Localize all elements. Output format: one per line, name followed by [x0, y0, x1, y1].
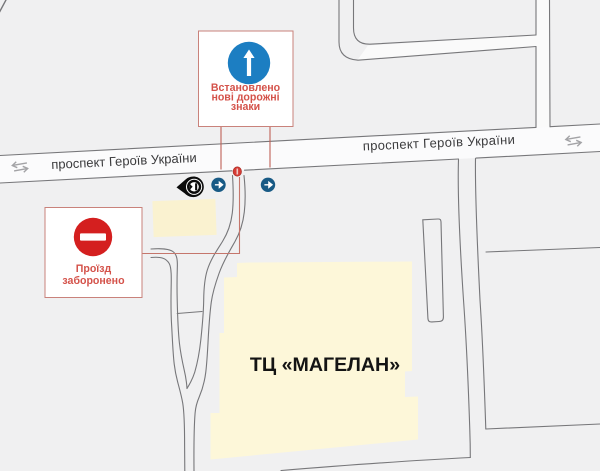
- svg-text:ТЦ «МАГЕЛАН»: ТЦ «МАГЕЛАН»: [250, 354, 400, 376]
- svg-text:заборонено: заборонено: [62, 275, 125, 287]
- svg-text:Проїзд: Проїзд: [76, 263, 112, 275]
- svg-text:знаки: знаки: [231, 101, 260, 113]
